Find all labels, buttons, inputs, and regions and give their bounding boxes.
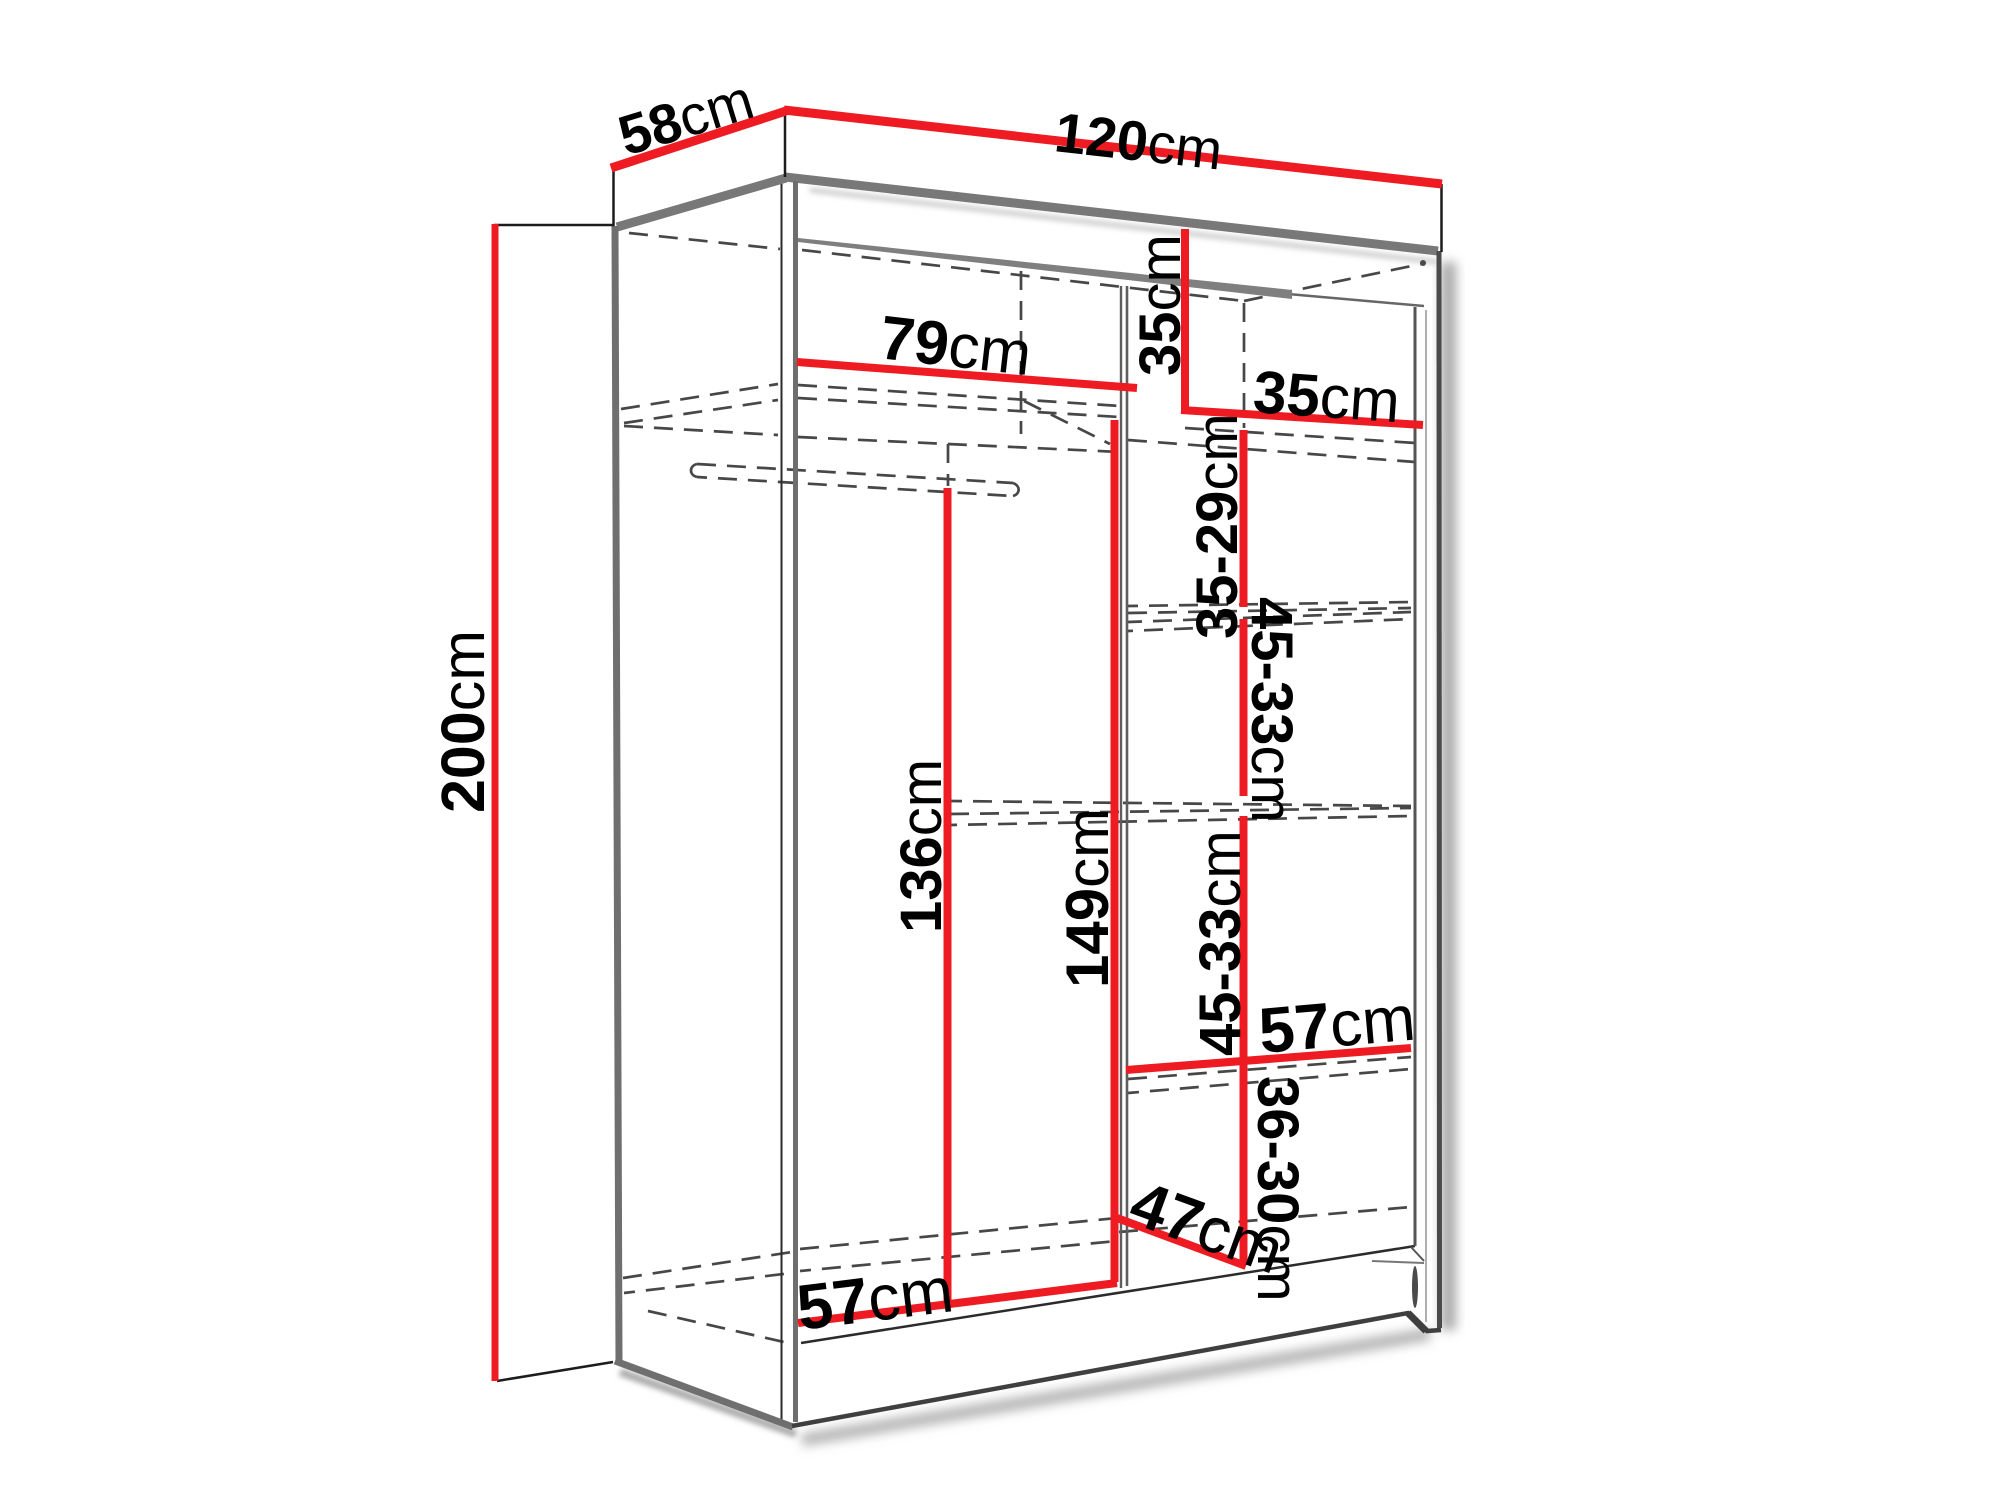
svg-text:35cm: 35cm xyxy=(1128,234,1193,376)
svg-text:45-33cm: 45-33cm xyxy=(1188,830,1253,1056)
svg-text:136cm: 136cm xyxy=(889,759,954,933)
svg-text:149cm: 149cm xyxy=(1054,808,1121,988)
svg-text:35cm: 35cm xyxy=(1251,358,1402,435)
svg-text:57cm: 57cm xyxy=(1256,982,1418,1067)
svg-text:200cm: 200cm xyxy=(429,630,497,813)
svg-text:45-33cm: 45-33cm xyxy=(1239,597,1304,823)
